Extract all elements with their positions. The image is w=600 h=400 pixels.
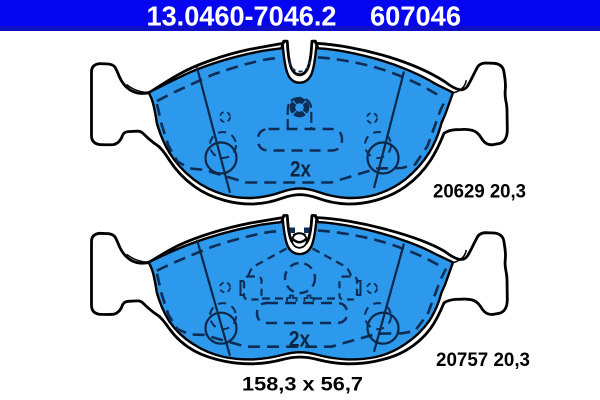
svg-text:13.0460-7046.2: 13.0460-7046.2 — [147, 0, 337, 31]
svg-text:607046: 607046 — [370, 0, 461, 31]
svg-text:158,3 x 56,7: 158,3 x 56,7 — [242, 374, 363, 396]
svg-text:20629 20,3: 20629 20,3 — [433, 182, 526, 203]
svg-text:20757 20,3: 20757 20,3 — [436, 350, 530, 371]
svg-text:2x: 2x — [289, 327, 311, 352]
svg-text:2x: 2x — [290, 157, 312, 182]
